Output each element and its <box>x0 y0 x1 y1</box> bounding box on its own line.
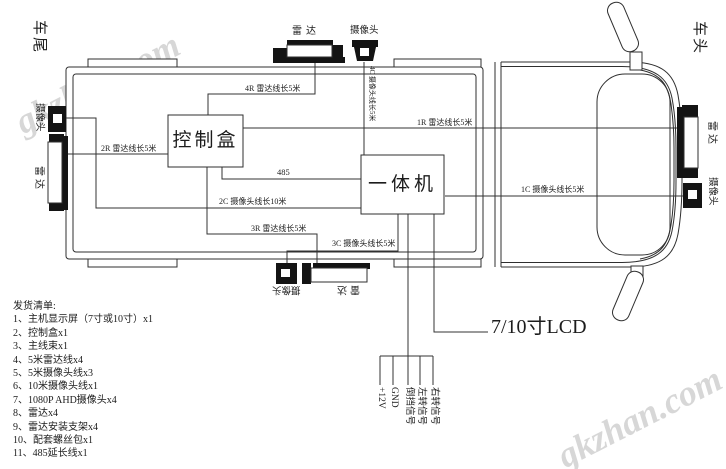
camera-top-icon <box>352 40 378 61</box>
packing-list: 发货清单: 1、主机显示屏（7寸或10寸）x1 2、控制盒x1 3、主线束x1 … <box>13 300 153 461</box>
mirror-arm-top <box>630 52 642 70</box>
radar-left-icon <box>48 134 68 211</box>
camera-bottom-icon <box>276 263 297 284</box>
mirror-bottom <box>610 269 646 324</box>
packing-list-item: 1、主机显示屏（7寸或10寸）x1 <box>13 313 153 326</box>
mirror-top <box>605 0 641 54</box>
packing-list-item: 7、1080P AHD摄像头x4 <box>13 394 153 407</box>
control-box-outline <box>168 115 243 167</box>
packing-list-item: 11、485延长线x1 <box>13 447 153 460</box>
radar-top-icon <box>273 40 345 63</box>
all-in-one-box-outline <box>361 155 444 214</box>
packing-list-item: 10、配套螺丝包x1 <box>13 434 153 447</box>
wiring-diagram-canvas: gkzhan.com gkzhan.com <box>0 0 726 469</box>
packing-list-item: 6、10米摄像头线x1 <box>13 380 153 393</box>
packing-list-item: 2、控制盒x1 <box>13 327 153 340</box>
radar-right-icon <box>677 105 698 178</box>
packing-list-item: 5、5米摄像头线x3 <box>13 367 153 380</box>
cab <box>495 62 682 267</box>
windshield <box>597 74 670 255</box>
radar-bottom-icon <box>302 263 370 284</box>
packing-list-item: 8、雷达x4 <box>13 407 153 420</box>
packing-list-item: 3、主线束x1 <box>13 340 153 353</box>
packing-list-item: 9、雷达安装支架x4 <box>13 421 153 434</box>
packing-list-title: 发货清单: <box>13 300 153 313</box>
packing-list-item: 4、5米雷达线x4 <box>13 354 153 367</box>
camera-left-icon <box>48 106 66 132</box>
camera-right-icon <box>683 183 702 208</box>
